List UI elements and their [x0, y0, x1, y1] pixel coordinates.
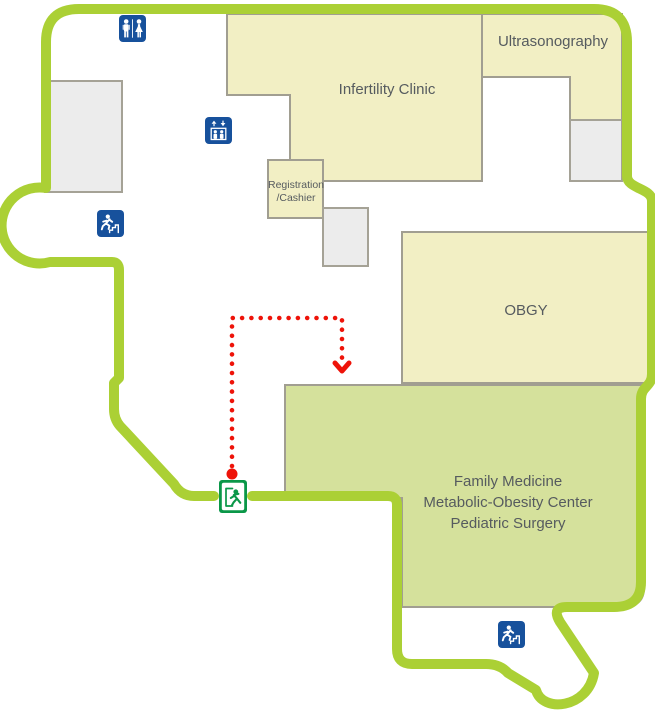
- emergency-stairs-icon: [498, 621, 525, 648]
- restroom-icon: [119, 15, 146, 42]
- route-arrow-head: [335, 363, 349, 371]
- label-family-medicine-line1: Family Medicine: [454, 473, 562, 490]
- emergency-exit-icon: [219, 480, 247, 513]
- floor-map-svg: Infertility Clinic Ultrasonography Regis…: [0, 0, 655, 719]
- utility-room-middle: [323, 208, 368, 266]
- route-start-dot: [227, 469, 238, 480]
- label-ultrasonography: Ultrasonography: [498, 33, 609, 50]
- label-registration-line2: /Cashier: [276, 192, 316, 204]
- hospital-floor-map: Infertility Clinic Ultrasonography Regis…: [0, 0, 655, 719]
- label-registration-line1: Registration: [268, 179, 324, 191]
- elevator-icon: [205, 117, 232, 144]
- label-infertility-clinic: Infertility Clinic: [339, 81, 436, 98]
- emergency-stairs-icon: [97, 210, 124, 237]
- label-obgy: OBGY: [504, 302, 547, 319]
- utility-room-right: [570, 120, 622, 181]
- room-ultrasonography: [482, 14, 622, 120]
- label-family-medicine-line2: Metabolic-Obesity Center: [423, 494, 592, 511]
- utility-room-top-left: [45, 81, 122, 192]
- label-family-medicine-line3: Pediatric Surgery: [450, 515, 566, 532]
